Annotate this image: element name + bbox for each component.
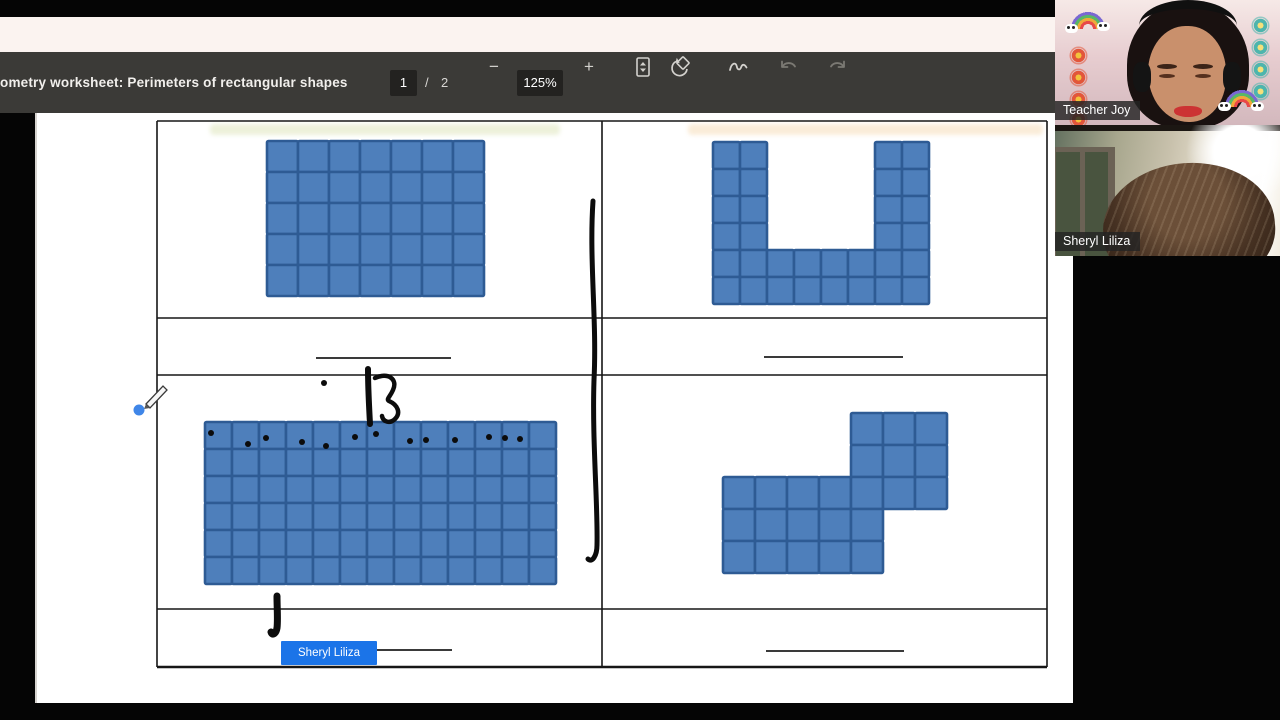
flower-sticker xyxy=(1253,18,1268,33)
browser-tab-strip xyxy=(0,17,1055,52)
cloud-sticker xyxy=(1097,22,1110,31)
fit-to-page-icon xyxy=(633,56,653,78)
participant-name-label: Sheryl Liliza xyxy=(1055,232,1140,251)
rotate-icon xyxy=(669,55,693,79)
cloud-sticker xyxy=(1218,102,1231,111)
eyebrow xyxy=(1157,64,1177,69)
video-tile-sheryl-liliza[interactable]: Sheryl Liliza xyxy=(1055,125,1280,256)
flower-sticker xyxy=(1253,62,1268,77)
minus-icon: − xyxy=(489,57,499,77)
draw-button[interactable] xyxy=(724,52,754,82)
cloud-sticker xyxy=(1251,102,1264,111)
headphone-earcup xyxy=(1133,62,1151,92)
zoom-in-button[interactable]: + xyxy=(574,52,604,82)
redo-button[interactable] xyxy=(822,52,852,82)
undo-icon xyxy=(778,57,800,77)
flower-sticker xyxy=(1071,48,1086,63)
page-total: 2 xyxy=(441,52,448,113)
pdf-page-canvas[interactable] xyxy=(35,113,1073,703)
draw-icon xyxy=(727,57,751,77)
annotation-cursor-name-tag: Sheryl Liliza xyxy=(281,641,377,665)
fit-to-page-button[interactable] xyxy=(628,52,658,82)
undo-button[interactable] xyxy=(774,52,804,82)
faded-highlight-left xyxy=(210,124,560,135)
zoom-out-button[interactable]: − xyxy=(479,52,509,82)
plus-icon: + xyxy=(584,57,594,77)
page-separator: / xyxy=(425,52,429,113)
flower-sticker xyxy=(1253,40,1268,55)
participant-name-label: Teacher Joy xyxy=(1055,101,1140,120)
pdf-toolbar: ometry worksheet: Perimeters of rectangu… xyxy=(0,52,1055,113)
zoom-level-value[interactable]: 125% xyxy=(517,70,563,96)
eye xyxy=(1159,74,1175,78)
eye xyxy=(1195,74,1211,78)
flower-sticker xyxy=(1071,70,1086,85)
video-tile-teacher-joy[interactable]: Teacher Joy xyxy=(1055,0,1280,125)
rotate-button[interactable] xyxy=(666,52,696,82)
current-page-input[interactable]: 1 xyxy=(390,70,417,96)
cloud-sticker xyxy=(1065,24,1078,33)
zoom-level-field[interactable]: 125% xyxy=(517,52,563,113)
lips xyxy=(1174,106,1202,117)
faded-highlight-right xyxy=(688,124,1043,135)
redo-icon xyxy=(826,57,848,77)
page-number-field[interactable]: 1 xyxy=(390,52,417,113)
meeting-screen-share: ometry worksheet: Perimeters of rectangu… xyxy=(0,0,1280,720)
document-title: ometry worksheet: Perimeters of rectangu… xyxy=(0,52,348,113)
eyebrow xyxy=(1193,64,1213,69)
